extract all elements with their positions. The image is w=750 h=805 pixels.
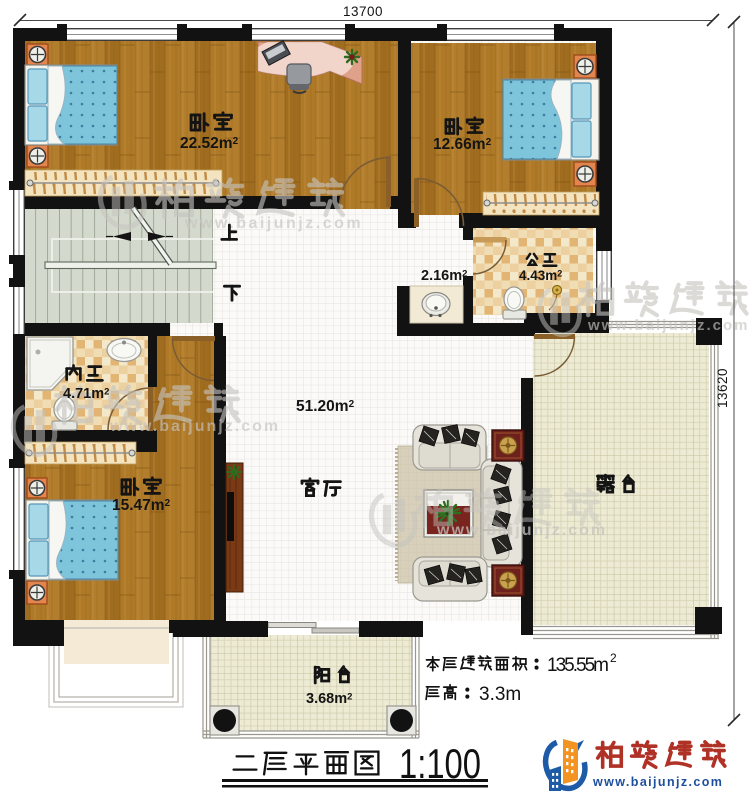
svg-text:135.55m: 135.55m — [547, 655, 609, 676]
svg-text:15.47m2: 15.47m2 — [112, 497, 171, 514]
svg-text:www.baijunjz.com: www.baijunjz.com — [184, 215, 363, 232]
svg-text:3.68m2: 3.68m2 — [306, 691, 352, 707]
svg-text:2: 2 — [610, 651, 617, 665]
svg-text:22.52m2: 22.52m2 — [180, 135, 239, 152]
svg-text:4.43m2: 4.43m2 — [519, 268, 562, 283]
svg-text:2.16m2: 2.16m2 — [421, 268, 467, 284]
svg-text:www.baijunjz.com: www.baijunjz.com — [109, 418, 280, 435]
svg-text:13700: 13700 — [343, 4, 383, 19]
svg-text:www.baijunjz.com: www.baijunjz.com — [587, 317, 749, 334]
svg-text:51.20m2: 51.20m2 — [296, 398, 355, 415]
svg-text:4.71m2: 4.71m2 — [63, 386, 109, 402]
svg-text:12.66m2: 12.66m2 — [433, 136, 492, 153]
svg-text:www.baijunjz.com: www.baijunjz.com — [592, 775, 723, 789]
svg-text:13620: 13620 — [715, 368, 730, 408]
svg-text:www.baijunjz.com: www.baijunjz.com — [436, 522, 607, 539]
svg-text:3.3m: 3.3m — [479, 684, 521, 705]
